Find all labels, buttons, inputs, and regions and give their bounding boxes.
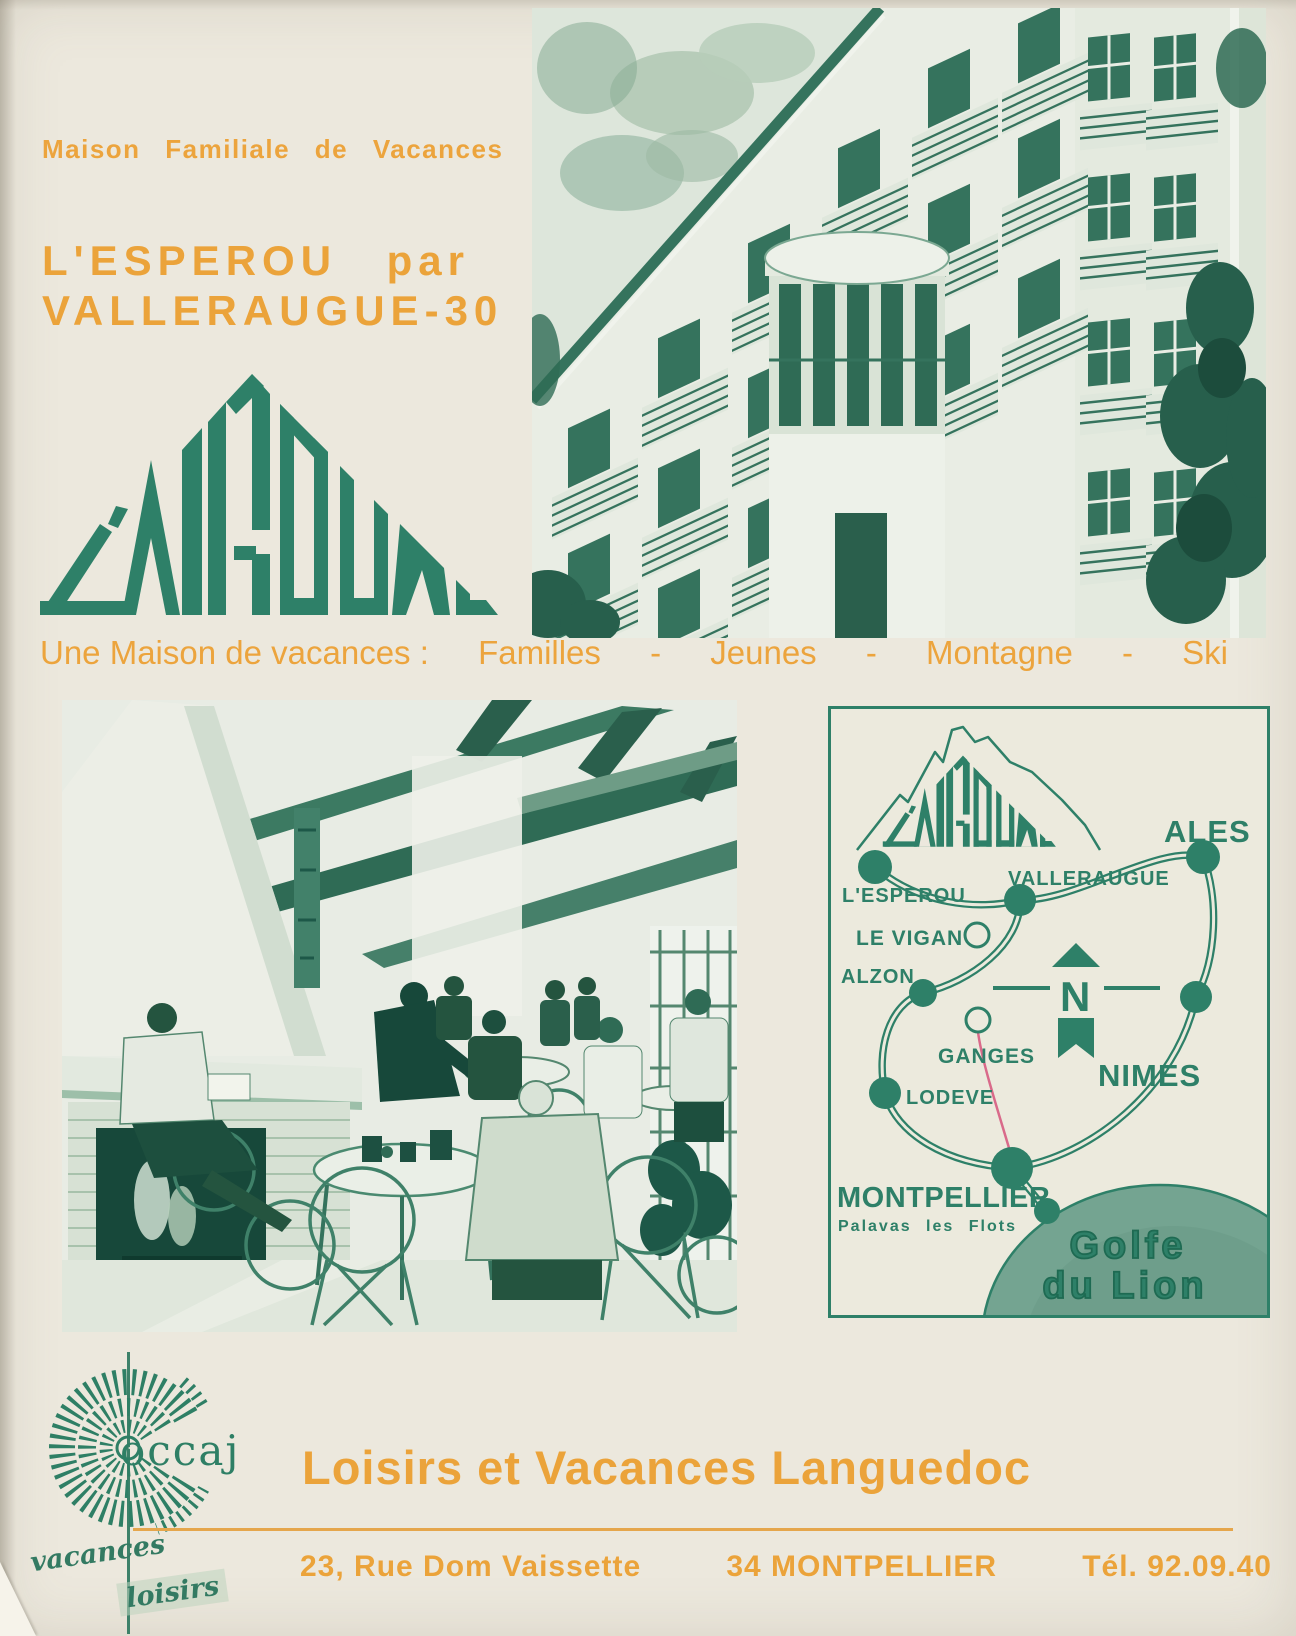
tagline-item: Jeunes bbox=[710, 634, 816, 672]
footer-rule bbox=[133, 1528, 1233, 1531]
label-esperou: L'ESPEROU bbox=[842, 885, 966, 907]
footer-address-row: 23, Rue Dom Vaissette 34 MONTPELLIER Tél… bbox=[300, 1550, 1272, 1584]
sea-label-1: Golfe bbox=[1069, 1225, 1186, 1267]
round-tower bbox=[765, 232, 949, 638]
label-nimes: NIMES bbox=[1098, 1058, 1201, 1093]
label-ales: ALES bbox=[1164, 814, 1251, 849]
label-palavas: Palavas les Flots bbox=[838, 1218, 1017, 1235]
label-alzon: ALZON bbox=[841, 966, 915, 988]
occaj-brand-text: occaj bbox=[120, 1426, 240, 1475]
region-map: Golfe du Lion bbox=[828, 706, 1270, 1318]
tagline-item: Montagne bbox=[926, 634, 1073, 672]
scan-edge-shadow bbox=[0, 0, 16, 1636]
label-lodeve: LODEVE bbox=[906, 1087, 994, 1109]
tagline-sep: - bbox=[866, 634, 877, 672]
tagline-sep: - bbox=[1122, 634, 1133, 672]
label-valleraugue: VALLERAUGUE bbox=[1008, 868, 1170, 890]
compass-n-label: N bbox=[1060, 973, 1090, 1020]
label-levigan: LE VIGAN bbox=[856, 927, 963, 950]
title-line1-right: par bbox=[387, 236, 470, 286]
script-loisirs: loisirs bbox=[116, 1569, 229, 1617]
footer-headline-text: Loisirs et Vacances Languedoc bbox=[302, 1440, 1031, 1495]
label-montpellier: MONTPELLIER bbox=[837, 1182, 1050, 1214]
footer-headline: Loisirs et Vacances Languedoc bbox=[302, 1440, 1270, 1495]
brochure-page: Maison Familiale de Vacances L'ESPEROU p… bbox=[0, 0, 1296, 1636]
title-line2-left: VALLERAUGUE bbox=[42, 286, 425, 336]
label-ganges: GANGES bbox=[938, 1045, 1035, 1068]
aigoual-logo: L'AIGOUAL bbox=[30, 338, 500, 623]
tagline: Une Maison de vacances : Familles - Jeun… bbox=[40, 634, 1228, 672]
tagline-lead: Une Maison de vacances : bbox=[40, 634, 429, 672]
tagline-sep: - bbox=[650, 634, 661, 672]
building-photo bbox=[532, 8, 1266, 638]
eyebrow-text: Maison Familiale de Vacances bbox=[42, 134, 512, 165]
tagline-item: Ski bbox=[1182, 634, 1228, 672]
aigoual-logo-art bbox=[30, 338, 500, 618]
terrace-photo bbox=[62, 700, 737, 1332]
tagline-item: Familles bbox=[478, 634, 601, 672]
title-line2-mid: - bbox=[425, 286, 445, 336]
sea-label-2: du Lion bbox=[1042, 1265, 1207, 1307]
paper-fold-corner bbox=[0, 1562, 36, 1636]
wall-tapestry bbox=[294, 808, 320, 988]
title-line2-right: 30 bbox=[445, 286, 504, 336]
footer-phone: Tél. 92.09.40 bbox=[1082, 1550, 1272, 1584]
footer-city: 34 MONTPELLIER bbox=[726, 1550, 997, 1584]
title-line1-left: L'ESPEROU bbox=[42, 236, 337, 286]
page-title: L'ESPEROU par VALLERAUGUE - 30 bbox=[42, 236, 470, 335]
footer-street: 23, Rue Dom Vaissette bbox=[300, 1550, 641, 1584]
